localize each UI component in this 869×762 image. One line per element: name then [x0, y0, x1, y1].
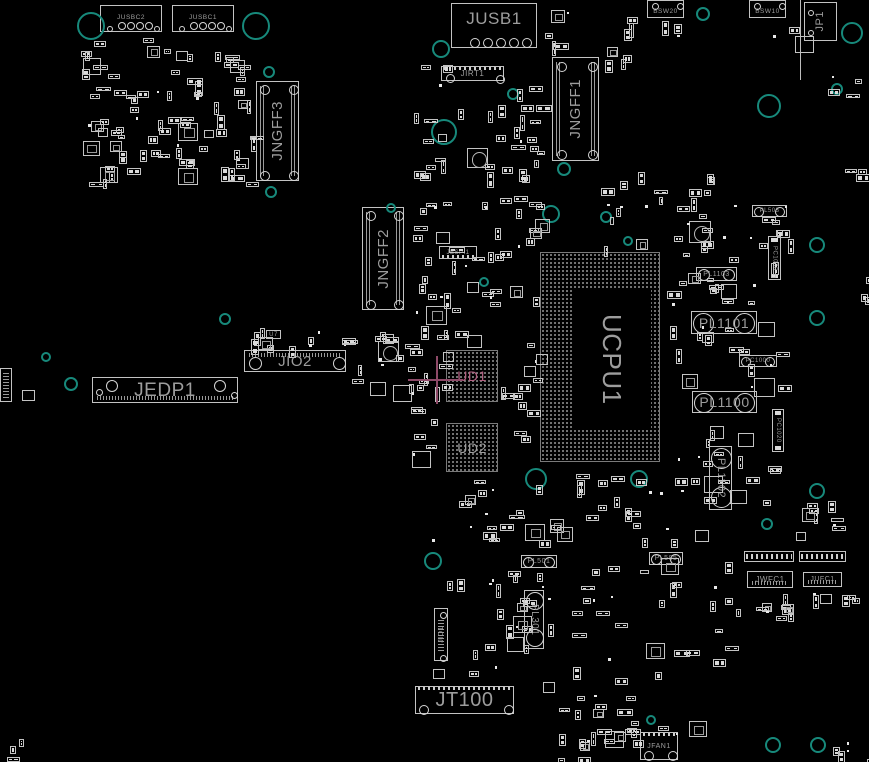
small-ic[interactable]	[695, 530, 709, 543]
test-point[interactable]	[677, 35, 680, 38]
passive-smd[interactable]	[809, 508, 819, 514]
passive-smd[interactable]	[636, 479, 646, 487]
passive-smd[interactable]	[729, 257, 739, 263]
passive-smd[interactable]	[715, 629, 723, 634]
passive-smd[interactable]	[683, 253, 690, 257]
test-point[interactable]	[847, 750, 850, 753]
passive-smd[interactable]	[855, 79, 862, 84]
component-ucpu1[interactable]: UCPU1	[540, 252, 660, 462]
passive-smd[interactable]	[714, 452, 723, 456]
passive-smd[interactable]	[513, 575, 518, 583]
passive-smd[interactable]	[611, 476, 625, 482]
test-point[interactable]	[490, 296, 493, 299]
passive-smd[interactable]	[181, 117, 194, 121]
small-ic[interactable]	[661, 558, 679, 574]
test-point[interactable]	[587, 740, 590, 743]
small-ic[interactable]	[614, 732, 625, 742]
test-point[interactable]	[593, 599, 596, 602]
test-point[interactable]	[177, 144, 180, 147]
passive-smd[interactable]	[452, 261, 457, 275]
passive-smd[interactable]	[176, 148, 182, 159]
passive-smd[interactable]	[671, 539, 679, 548]
passive-smd[interactable]	[762, 217, 776, 223]
passive-smd[interactable]	[763, 500, 771, 505]
passive-smd[interactable]	[707, 174, 714, 185]
passive-smd[interactable]	[497, 609, 503, 621]
passive-smd[interactable]	[437, 335, 449, 339]
passive-smd[interactable]	[527, 410, 542, 416]
component-jfan1[interactable]: JFAN1	[640, 732, 678, 760]
passive-smd[interactable]	[496, 135, 506, 143]
passive-smd[interactable]	[421, 326, 429, 340]
component-jt100[interactable]: JT100	[415, 686, 514, 714]
passive-smd[interactable]	[616, 208, 620, 217]
passive-smd[interactable]	[530, 120, 541, 124]
test-point[interactable]	[770, 364, 773, 367]
small-ic[interactable]	[530, 228, 542, 239]
passive-smd[interactable]	[617, 709, 633, 716]
passive-smd[interactable]	[746, 477, 760, 484]
component-bsw10[interactable]: BSW10	[749, 0, 786, 18]
small-ic[interactable]	[513, 616, 532, 633]
passive-smd[interactable]	[658, 726, 669, 731]
small-ic[interactable]	[98, 128, 108, 137]
small-ic[interactable]	[593, 709, 604, 719]
passive-smd[interactable]	[527, 343, 535, 348]
passive-smd[interactable]	[626, 696, 636, 701]
passive-smd[interactable]	[773, 262, 779, 275]
test-point[interactable]	[434, 206, 437, 209]
passive-smd[interactable]	[676, 349, 682, 364]
passive-smd[interactable]	[778, 385, 792, 392]
passive-smd[interactable]	[428, 294, 437, 300]
passive-smd[interactable]	[689, 189, 702, 196]
passive-smd[interactable]	[217, 115, 225, 130]
passive-smd[interactable]	[572, 633, 587, 638]
passive-smd[interactable]	[119, 151, 127, 158]
passive-smd[interactable]	[224, 62, 239, 69]
passive-smd[interactable]	[246, 182, 260, 187]
passive-smd[interactable]	[487, 526, 497, 531]
test-point[interactable]	[470, 526, 473, 529]
passive-smd[interactable]	[529, 86, 543, 92]
passive-smd[interactable]	[577, 485, 582, 498]
passive-smd[interactable]	[514, 127, 520, 139]
passive-smd[interactable]	[419, 284, 425, 293]
passive-smd[interactable]	[699, 214, 708, 219]
test-point[interactable]	[485, 513, 488, 516]
passive-smd[interactable]	[614, 497, 620, 508]
passive-smd[interactable]	[710, 601, 716, 612]
test-point[interactable]	[847, 742, 850, 745]
passive-smd[interactable]	[739, 349, 749, 355]
component-jngff1[interactable]: JNGFF1	[552, 57, 599, 161]
passive-smd[interactable]	[595, 704, 607, 710]
small-ic[interactable]	[204, 130, 214, 139]
passive-smd[interactable]	[469, 671, 479, 677]
passive-smd[interactable]	[90, 94, 100, 98]
passive-smd[interactable]	[846, 94, 860, 98]
passive-smd[interactable]	[482, 202, 489, 210]
passive-smd[interactable]	[828, 89, 840, 96]
test-point[interactable]	[773, 35, 776, 38]
passive-smd[interactable]	[238, 65, 251, 70]
component-pl503[interactable]: PL503	[752, 205, 787, 217]
passive-smd[interactable]	[756, 607, 769, 611]
passive-smd[interactable]	[516, 209, 521, 219]
small-ic[interactable]	[258, 337, 273, 350]
passive-smd[interactable]	[833, 747, 840, 756]
small-ic[interactable]	[551, 10, 565, 23]
passive-smd[interactable]	[130, 107, 139, 113]
test-point[interactable]	[676, 733, 679, 736]
test-point[interactable]	[698, 456, 701, 459]
small-ic[interactable]	[524, 366, 536, 377]
passive-smd[interactable]	[527, 137, 537, 144]
passive-smd[interactable]	[581, 586, 596, 590]
small-ic[interactable]	[433, 669, 444, 679]
passive-smd[interactable]	[511, 145, 525, 150]
test-point[interactable]	[439, 84, 442, 87]
test-point[interactable]	[157, 91, 160, 94]
passive-smd[interactable]	[496, 584, 500, 598]
passive-smd[interactable]	[413, 235, 423, 242]
small-ic[interactable]	[607, 47, 618, 57]
passive-smd[interactable]	[736, 609, 741, 616]
passive-smd[interactable]	[572, 611, 584, 616]
test-point[interactable]	[492, 579, 495, 582]
passive-smd[interactable]	[707, 278, 714, 283]
passive-smd[interactable]	[118, 135, 125, 139]
passive-smd[interactable]	[229, 168, 234, 181]
passive-smd[interactable]	[447, 581, 453, 591]
passive-smd[interactable]	[738, 456, 743, 469]
passive-smd[interactable]	[108, 74, 119, 79]
passive-smd[interactable]	[533, 378, 543, 383]
passive-smd[interactable]	[426, 165, 436, 170]
passive-smd[interactable]	[640, 570, 650, 574]
passive-smd[interactable]	[845, 169, 857, 173]
test-point[interactable]	[723, 236, 726, 239]
passive-smd[interactable]	[96, 87, 112, 92]
small-ic[interactable]	[721, 284, 737, 298]
passive-smd[interactable]	[670, 326, 677, 340]
passive-smd[interactable]	[748, 364, 755, 377]
small-ic[interactable]	[438, 134, 448, 143]
passive-smd[interactable]	[575, 710, 581, 720]
passive-smd[interactable]	[472, 257, 485, 262]
passive-smd[interactable]	[776, 352, 790, 358]
test-point[interactable]	[832, 76, 835, 79]
passive-smd[interactable]	[100, 119, 109, 125]
passive-smd[interactable]	[620, 181, 628, 189]
small-ic[interactable]	[510, 286, 524, 298]
passive-smd[interactable]	[604, 246, 609, 257]
passive-smd[interactable]	[521, 436, 531, 443]
component-jusbc2[interactable]: JUSBC2	[100, 5, 162, 32]
test-point[interactable]	[548, 598, 551, 601]
passive-smd[interactable]	[601, 188, 615, 196]
passive-smd[interactable]	[234, 150, 241, 161]
passive-smd[interactable]	[215, 52, 221, 62]
small-ic[interactable]	[796, 532, 807, 542]
passive-smd[interactable]	[697, 332, 703, 341]
pin-row-connector[interactable]	[799, 551, 846, 562]
test-point[interactable]	[785, 206, 788, 209]
passive-smd[interactable]	[414, 434, 426, 440]
small-ic[interactable]	[682, 374, 698, 389]
passive-smd[interactable]	[536, 204, 545, 210]
passive-smd[interactable]	[578, 757, 592, 762]
passive-smd[interactable]	[598, 505, 607, 511]
passive-smd[interactable]	[425, 257, 433, 266]
passive-smd[interactable]	[591, 732, 596, 745]
passive-smd[interactable]	[748, 301, 755, 306]
passive-smd[interactable]	[533, 297, 540, 308]
small-ic[interactable]	[710, 426, 724, 439]
passive-smd[interactable]	[421, 65, 431, 70]
passive-smd[interactable]	[725, 328, 735, 332]
test-point[interactable]	[309, 344, 312, 347]
passive-smd[interactable]	[473, 650, 478, 660]
small-ic[interactable]	[543, 682, 555, 693]
test-point[interactable]	[672, 303, 675, 306]
passive-smd[interactable]	[452, 308, 461, 313]
passive-smd[interactable]	[443, 202, 452, 206]
passive-smd[interactable]	[483, 532, 497, 540]
small-ic[interactable]	[557, 527, 573, 541]
passive-smd[interactable]	[691, 478, 699, 485]
passive-smd[interactable]	[85, 52, 90, 61]
passive-smd[interactable]	[832, 526, 847, 530]
passive-smd[interactable]	[631, 721, 639, 726]
test-point[interactable]	[136, 117, 139, 120]
passive-smd[interactable]	[667, 291, 683, 299]
passive-smd[interactable]	[226, 57, 235, 63]
passive-smd[interactable]	[633, 523, 641, 529]
pcb-board-canvas[interactable]: JUSBC2JUSBC1JUSB1JP1BSW20BSW10JIRT1JNGFF…	[0, 0, 869, 762]
component-jngff3[interactable]: JNGFF3	[256, 81, 299, 181]
passive-smd[interactable]	[722, 299, 734, 304]
passive-smd[interactable]	[686, 650, 700, 656]
passive-smd[interactable]	[655, 672, 662, 679]
passive-smd[interactable]	[539, 540, 551, 547]
test-point[interactable]	[687, 223, 690, 226]
test-point[interactable]	[416, 311, 419, 314]
passive-smd[interactable]	[439, 364, 453, 370]
passive-smd[interactable]	[137, 91, 149, 98]
passive-smd[interactable]	[604, 739, 615, 745]
passive-smd[interactable]	[424, 119, 438, 123]
passive-smd[interactable]	[143, 38, 154, 43]
test-point[interactable]	[594, 695, 597, 698]
small-ic[interactable]	[467, 335, 482, 348]
passive-smd[interactable]	[659, 197, 663, 205]
small-ic[interactable]	[178, 168, 197, 185]
passive-smd[interactable]	[352, 379, 364, 384]
passive-smd[interactable]	[417, 385, 424, 391]
passive-smd[interactable]	[659, 600, 665, 609]
test-point[interactable]	[611, 596, 614, 599]
passive-smd[interactable]	[536, 485, 543, 495]
passive-smd[interactable]	[194, 92, 203, 97]
passive-smd[interactable]	[517, 89, 522, 102]
passive-smd[interactable]	[414, 113, 420, 124]
passive-smd[interactable]	[414, 226, 428, 231]
passive-smd[interactable]	[488, 111, 492, 123]
passive-smd[interactable]	[131, 97, 138, 104]
passive-smd[interactable]	[140, 150, 147, 163]
passive-smd[interactable]	[552, 41, 557, 56]
test-point[interactable]	[702, 326, 705, 329]
passive-smd[interactable]	[420, 173, 430, 181]
passive-smd[interactable]	[487, 172, 494, 188]
passive-smd[interactable]	[831, 518, 844, 522]
small-ic[interactable]	[730, 490, 746, 505]
passive-smd[interactable]	[776, 616, 787, 620]
test-point[interactable]	[567, 12, 570, 15]
test-point[interactable]	[607, 204, 610, 207]
passive-smd[interactable]	[579, 739, 586, 749]
test-point[interactable]	[608, 658, 611, 661]
passive-smd[interactable]	[500, 251, 512, 259]
component-pc1020[interactable]: PC1020	[772, 409, 784, 452]
passive-smd[interactable]	[521, 105, 534, 112]
passive-smd[interactable]	[702, 228, 713, 233]
passive-smd[interactable]	[861, 294, 868, 302]
test-point[interactable]	[440, 296, 443, 299]
passive-smd[interactable]	[777, 230, 789, 238]
small-ic[interactable]	[688, 273, 701, 284]
passive-smd[interactable]	[82, 69, 90, 80]
test-point[interactable]	[432, 539, 435, 542]
edge-connector[interactable]	[0, 368, 12, 402]
passive-smd[interactable]	[500, 524, 514, 532]
passive-smd[interactable]	[420, 208, 427, 214]
test-point[interactable]	[413, 453, 416, 456]
passive-smd[interactable]	[105, 166, 115, 172]
passive-smd[interactable]	[114, 90, 127, 96]
passive-smd[interactable]	[519, 169, 527, 183]
test-point[interactable]	[620, 206, 623, 209]
passive-smd[interactable]	[199, 146, 208, 153]
passive-smd[interactable]	[691, 198, 697, 211]
component-pl1103[interactable]: PL1103	[696, 267, 737, 281]
passive-smd[interactable]	[422, 276, 428, 284]
small-ic[interactable]	[426, 306, 447, 325]
passive-smd[interactable]	[514, 431, 528, 436]
passive-smd[interactable]	[626, 511, 642, 516]
passive-smd[interactable]	[679, 281, 687, 286]
small-ic[interactable]	[689, 721, 707, 737]
passive-smd[interactable]	[187, 54, 193, 63]
passive-smd[interactable]	[458, 109, 464, 120]
test-point[interactable]	[681, 490, 684, 493]
passive-smd[interactable]	[537, 573, 542, 582]
passive-smd[interactable]	[234, 88, 245, 96]
passive-smd[interactable]	[675, 478, 688, 486]
test-point[interactable]	[495, 666, 498, 669]
small-ic[interactable]	[636, 239, 648, 249]
passive-smd[interactable]	[558, 758, 566, 762]
test-point[interactable]	[750, 237, 753, 240]
passive-smd[interactable]	[520, 598, 530, 604]
small-ic[interactable]	[782, 604, 794, 615]
passive-smd[interactable]	[488, 252, 494, 263]
passive-smd[interactable]	[536, 105, 552, 112]
passive-smd[interactable]	[167, 91, 172, 100]
passive-smd[interactable]	[385, 337, 399, 342]
passive-smd[interactable]	[586, 515, 599, 521]
passive-smd[interactable]	[577, 696, 585, 701]
test-point[interactable]	[649, 491, 652, 494]
passive-smd[interactable]	[158, 154, 171, 158]
passive-smd[interactable]	[559, 708, 570, 712]
passive-smd[interactable]	[704, 190, 711, 196]
passive-smd[interactable]	[537, 151, 545, 155]
passive-smd[interactable]	[435, 158, 446, 162]
passive-smd[interactable]	[813, 595, 819, 609]
passive-smd[interactable]	[159, 128, 171, 135]
test-point[interactable]	[518, 245, 521, 248]
test-point[interactable]	[734, 205, 737, 208]
passive-smd[interactable]	[770, 468, 781, 474]
passive-smd[interactable]	[405, 344, 420, 349]
passive-smd[interactable]	[856, 174, 869, 182]
small-ic[interactable]	[467, 282, 479, 293]
passive-smd[interactable]	[627, 728, 634, 732]
small-ic[interactable]	[443, 352, 454, 362]
small-ic[interactable]	[704, 476, 723, 493]
passive-smd[interactable]	[10, 746, 16, 754]
passive-smd[interactable]	[509, 515, 525, 520]
passive-smd[interactable]	[187, 78, 203, 84]
passive-smd[interactable]	[7, 757, 20, 762]
passive-smd[interactable]	[788, 239, 795, 254]
test-point[interactable]	[666, 528, 669, 531]
passive-smd[interactable]	[520, 115, 526, 131]
passive-smd[interactable]	[638, 172, 646, 185]
passive-smd[interactable]	[342, 338, 357, 345]
passive-smd[interactable]	[443, 65, 453, 73]
passive-smd[interactable]	[629, 23, 634, 39]
passive-smd[interactable]	[289, 346, 296, 359]
passive-smd[interactable]	[410, 349, 424, 356]
test-point[interactable]	[714, 586, 717, 589]
passive-smd[interactable]	[457, 579, 465, 591]
passive-smd[interactable]	[608, 566, 620, 572]
passive-smd[interactable]	[500, 198, 512, 204]
small-chip[interactable]	[22, 390, 35, 401]
passive-smd[interactable]	[598, 480, 608, 487]
test-point[interactable]	[645, 205, 648, 208]
passive-smd[interactable]	[358, 365, 363, 376]
test-point[interactable]	[520, 140, 523, 143]
passive-smd[interactable]	[713, 659, 725, 667]
passive-smd[interactable]	[842, 595, 850, 607]
test-point[interactable]	[678, 458, 681, 461]
passive-smd[interactable]	[759, 243, 768, 249]
passive-smd[interactable]	[615, 678, 628, 685]
component-bsw20[interactable]: BSW20	[647, 0, 684, 18]
passive-smd[interactable]	[431, 419, 438, 427]
passive-smd[interactable]	[573, 667, 581, 680]
passive-smd[interactable]	[534, 160, 539, 168]
passive-smd[interactable]	[478, 490, 487, 497]
component-pl1100[interactable]: PL1100	[692, 391, 757, 413]
passive-smd[interactable]	[623, 55, 632, 63]
passive-smd[interactable]	[725, 646, 740, 651]
